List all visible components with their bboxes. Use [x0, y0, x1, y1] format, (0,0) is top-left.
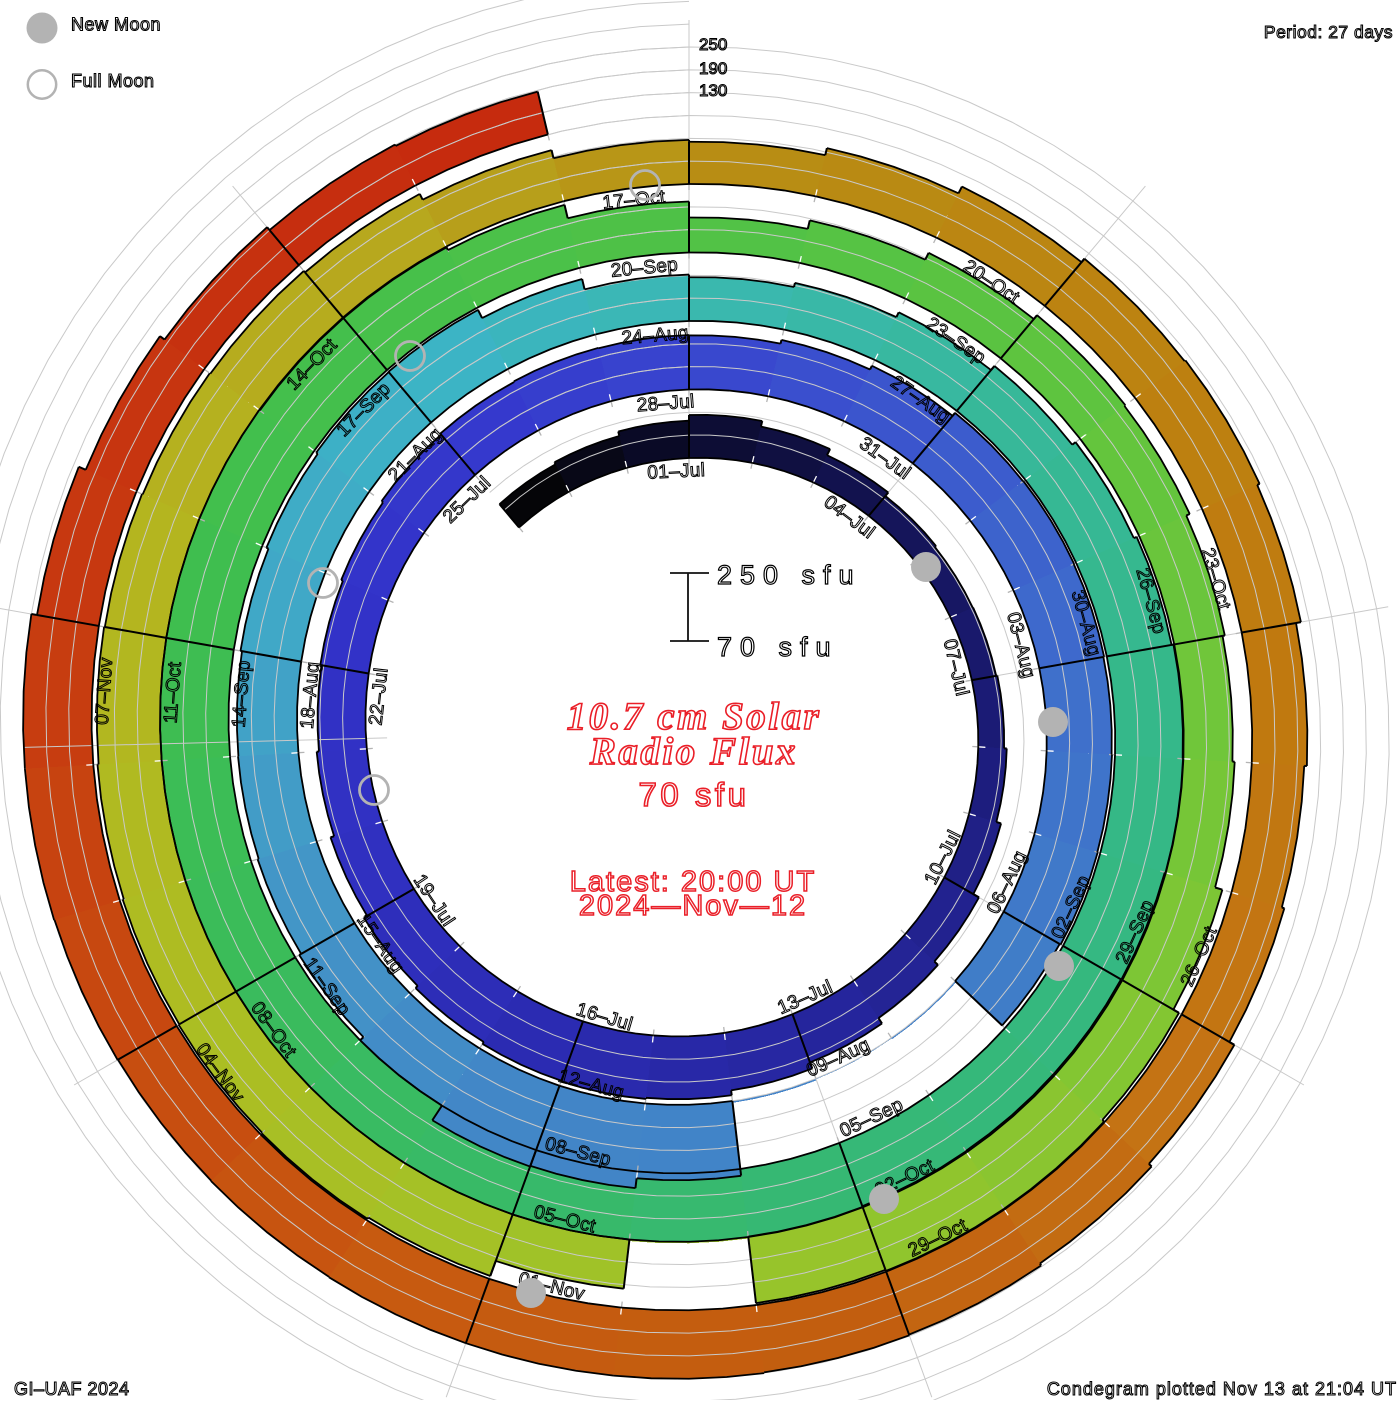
svg-text:Radio Flux: Radio Flux [589, 730, 798, 773]
svg-text:130: 130 [699, 81, 727, 100]
svg-text:2024—Nov—12: 2024—Nov—12 [579, 890, 807, 922]
svg-text:07–Nov: 07–Nov [92, 657, 117, 726]
svg-text:70 sfu: 70 sfu [639, 776, 750, 813]
svg-text:01–Jul: 01–Jul [647, 460, 706, 484]
svg-text:Period: 27 days: Period: 27 days [1264, 22, 1393, 42]
svg-text:GI–UAF 2024: GI–UAF 2024 [14, 1379, 130, 1399]
svg-text:190: 190 [699, 59, 727, 78]
svg-text:28–Jul: 28–Jul [636, 391, 695, 416]
svg-text:250 sfu: 250 sfu [717, 560, 862, 590]
svg-text:New Moon: New Moon [71, 15, 161, 35]
svg-text:Full Moon: Full Moon [71, 71, 155, 91]
svg-text:250: 250 [699, 35, 727, 54]
svg-text:70 sfu: 70 sfu [717, 632, 839, 662]
svg-text:Condegram plotted Nov 13 at 21: Condegram plotted Nov 13 at 21:04 UT [1047, 1379, 1397, 1399]
